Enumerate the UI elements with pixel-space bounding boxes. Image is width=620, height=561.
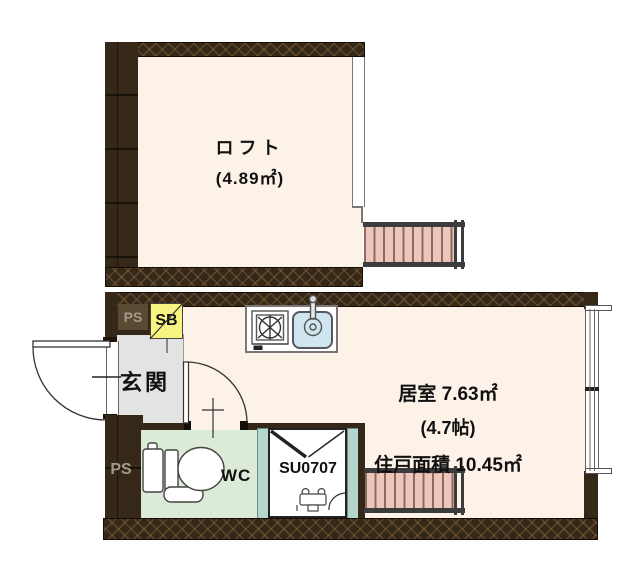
- loft-room-area: (4.89㎡): [150, 164, 350, 189]
- loft-ladder: [363, 222, 465, 267]
- ladder-treads: [364, 227, 454, 262]
- loft-bottom-wall: [105, 267, 363, 287]
- wc-label: WC: [221, 466, 251, 486]
- ladder-endcap: [454, 220, 457, 269]
- left-wall-upper-strip: [105, 292, 117, 343]
- floor-plan: ロフト (4.89㎡) PS SB: [0, 0, 620, 561]
- entrance-door: [33, 341, 110, 420]
- living-room-tatami: (4.7帖): [323, 414, 573, 440]
- entrance-doorway-frame: [106, 341, 119, 417]
- ladder-endcap: [461, 220, 464, 269]
- entrance-jamb-top: [103, 337, 117, 342]
- right-window-cap-top: [585, 305, 612, 311]
- right-wall-bottom: [584, 471, 598, 518]
- ladder-rail: [363, 262, 465, 267]
- loft-left-wall-joint: [117, 42, 118, 287]
- lower-bottom-wall: [103, 518, 598, 540]
- pipe-space-upper-panel: PS: [118, 304, 148, 330]
- loft-room-name: ロフト: [150, 134, 350, 160]
- unit-total-area: 住戸面積 10.45㎡: [323, 450, 573, 477]
- right-window-meeting-tick: [585, 387, 599, 391]
- living-room-name-area: 居室 7.63㎡: [323, 379, 573, 406]
- right-window-cap-bottom: [585, 468, 612, 474]
- loft-top-wall: [105, 42, 365, 57]
- ladder-rail: [364, 508, 465, 513]
- storage-box-stub-line: [166, 339, 168, 353]
- loft-open-edge-lower: [361, 208, 363, 223]
- kitchen-sink: [292, 311, 333, 349]
- ladder-treads: [365, 473, 454, 508]
- storage-box: SB: [150, 303, 183, 339]
- loft-left-wall: [105, 42, 138, 287]
- entrance-label: 玄関: [120, 365, 170, 397]
- pipe-space-upper-label: PS: [124, 309, 143, 325]
- loft-open-edge: [352, 57, 365, 207]
- loft-label-block: ロフト (4.89㎡): [150, 134, 350, 189]
- pipe-space-lower-label: PS: [104, 461, 138, 479]
- living-room-label-block: 居室 7.63㎡ (4.7帖) 住戸面積 10.45㎡: [323, 379, 573, 477]
- storage-box-label: SB: [155, 312, 177, 330]
